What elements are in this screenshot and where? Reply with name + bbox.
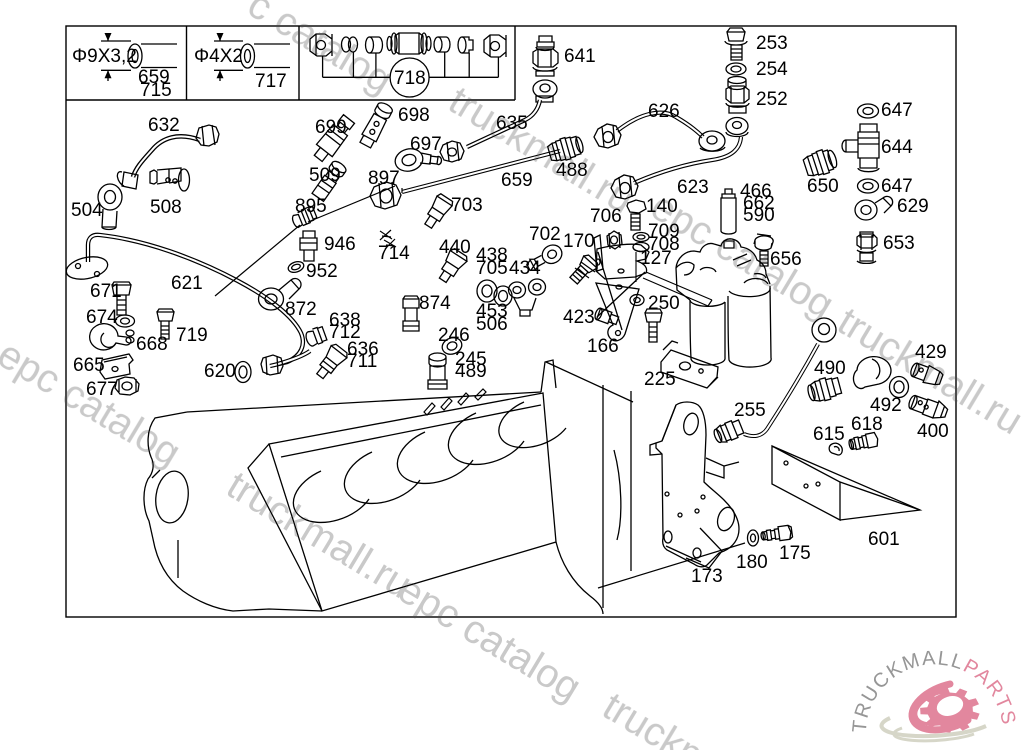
svg-text:615: 615 bbox=[813, 424, 845, 445]
svg-text:508: 508 bbox=[150, 197, 182, 218]
svg-text:647: 647 bbox=[881, 176, 913, 197]
svg-text:173: 173 bbox=[691, 566, 723, 587]
svg-text:711: 711 bbox=[347, 351, 377, 372]
svg-text:618: 618 bbox=[851, 414, 883, 435]
svg-text:180: 180 bbox=[736, 552, 768, 573]
svg-text:250: 250 bbox=[648, 293, 680, 314]
svg-text:699: 699 bbox=[315, 117, 347, 138]
svg-text:254: 254 bbox=[756, 59, 788, 80]
svg-text:659: 659 bbox=[501, 170, 533, 191]
svg-text:253: 253 bbox=[756, 33, 788, 54]
svg-text:872: 872 bbox=[285, 299, 317, 320]
svg-text:703: 703 bbox=[451, 195, 483, 216]
svg-text:400: 400 bbox=[917, 421, 949, 442]
svg-text:644: 644 bbox=[881, 137, 913, 158]
svg-text:504: 504 bbox=[71, 200, 103, 221]
svg-text:166: 166 bbox=[587, 336, 619, 357]
svg-text:718: 718 bbox=[394, 68, 426, 89]
svg-text:Φ4X2: Φ4X2 bbox=[194, 46, 243, 67]
svg-text:620: 620 bbox=[204, 361, 236, 382]
svg-text:698: 698 bbox=[398, 105, 430, 126]
svg-text:647: 647 bbox=[881, 100, 913, 121]
svg-text:490: 490 bbox=[814, 358, 846, 379]
svg-text:653: 653 bbox=[883, 233, 915, 254]
svg-text:492: 492 bbox=[870, 395, 902, 416]
svg-text:601: 601 bbox=[868, 529, 900, 550]
svg-text:952: 952 bbox=[306, 261, 338, 282]
svg-text:127: 127 bbox=[640, 248, 672, 269]
svg-text:705: 705 bbox=[476, 258, 508, 279]
svg-text:632: 632 bbox=[148, 115, 180, 136]
svg-text:874: 874 bbox=[419, 293, 451, 314]
svg-text:621: 621 bbox=[171, 273, 203, 294]
svg-text:225: 225 bbox=[644, 369, 676, 390]
svg-text:252: 252 bbox=[756, 89, 788, 110]
svg-text:671: 671 bbox=[90, 281, 122, 302]
svg-text:946: 946 bbox=[324, 234, 356, 255]
svg-text:895: 895 bbox=[295, 196, 327, 217]
svg-text:674: 674 bbox=[86, 307, 118, 328]
svg-text:506: 506 bbox=[476, 314, 508, 335]
svg-text:719: 719 bbox=[176, 325, 208, 346]
svg-text:Φ9X3,2: Φ9X3,2 bbox=[72, 46, 137, 67]
svg-text:423: 423 bbox=[563, 307, 595, 328]
svg-text:626: 626 bbox=[648, 101, 680, 122]
svg-text:epc catalog: epc catalog bbox=[390, 567, 588, 710]
svg-text:668: 668 bbox=[136, 334, 168, 355]
svg-text:246: 246 bbox=[438, 325, 470, 346]
svg-text:641: 641 bbox=[564, 46, 596, 67]
svg-text:175: 175 bbox=[779, 543, 811, 564]
svg-text:509: 509 bbox=[309, 165, 341, 186]
svg-text:715: 715 bbox=[140, 80, 172, 101]
svg-text:440: 440 bbox=[439, 237, 471, 258]
svg-text:truckmall.ru: truckmall.ru bbox=[219, 463, 419, 607]
svg-text:717: 717 bbox=[255, 71, 287, 92]
svg-text:629: 629 bbox=[897, 196, 929, 217]
svg-text:702: 702 bbox=[529, 224, 561, 245]
svg-text:897: 897 bbox=[368, 168, 400, 189]
svg-text:434: 434 bbox=[509, 258, 541, 279]
svg-text:590: 590 bbox=[743, 205, 775, 226]
svg-text:697: 697 bbox=[410, 134, 442, 155]
svg-text:650: 650 bbox=[807, 176, 839, 197]
svg-text:489: 489 bbox=[455, 361, 487, 382]
svg-text:255: 255 bbox=[734, 400, 766, 421]
svg-text:170: 170 bbox=[563, 231, 595, 252]
svg-text:truckmall.ru: truckmall.ru bbox=[595, 684, 795, 750]
svg-text:714: 714 bbox=[378, 243, 410, 264]
